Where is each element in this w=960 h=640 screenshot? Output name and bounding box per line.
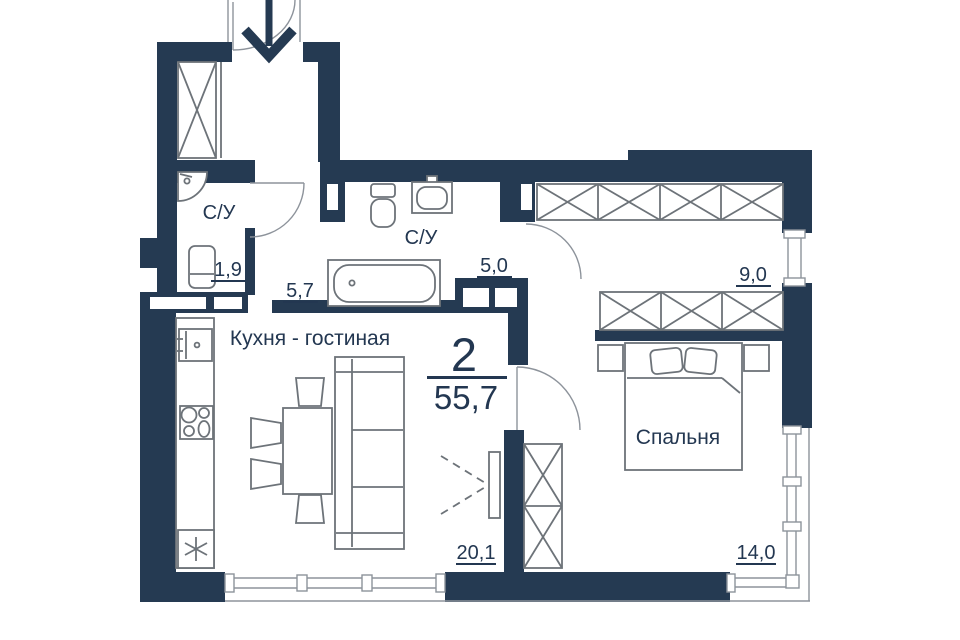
bathroom-door-arc <box>250 183 304 237</box>
dressing-wardrobe-bottom <box>600 292 783 330</box>
bedroom-name: Спальня <box>636 426 720 449</box>
kitchen-sink-icon <box>177 329 212 361</box>
wall-segment <box>245 228 255 295</box>
pillow <box>684 347 717 374</box>
total-area: 55,7 <box>434 379 498 416</box>
hallway-area: 5,7 <box>286 280 314 302</box>
wall-segment <box>140 572 225 602</box>
sofa <box>335 357 404 549</box>
wall-niche <box>521 184 532 210</box>
bedroom-door-arc <box>517 367 580 430</box>
kitchen-living-name: Кухня - гостиная <box>230 327 390 350</box>
chair <box>251 459 281 489</box>
wall-segment <box>782 283 812 428</box>
dressing-door-arc <box>526 224 581 279</box>
wall-segment <box>318 62 340 162</box>
bathtub-icon <box>328 260 440 306</box>
wall-segment <box>157 42 177 292</box>
washing-machine-icon <box>178 530 214 568</box>
washbasin-icon <box>412 176 452 213</box>
bathroom-small-area: 1,9 <box>214 259 242 281</box>
wall-niche <box>327 184 338 210</box>
kitchen-window <box>225 574 445 592</box>
apartment-summary: 2 55,7 <box>427 328 507 416</box>
tv-direction-dashes <box>441 456 487 484</box>
wall-shaft-niche <box>463 288 489 307</box>
floor-plan: С/У 1,9 5,7 С/У 5,0 9,0 Кухня - гостиная… <box>0 0 960 640</box>
chair <box>296 495 324 523</box>
bed <box>598 343 769 470</box>
chair <box>251 418 281 448</box>
wall-segment <box>320 160 812 182</box>
wall-segment <box>504 430 524 573</box>
wall-segment <box>140 238 157 268</box>
wall-segment <box>303 42 340 62</box>
dressing-area: 9,0 <box>739 264 767 286</box>
corner-sink-icon <box>178 172 207 201</box>
bathroom-big-area: 5,0 <box>480 255 508 277</box>
bedroom-wardrobe <box>524 444 562 568</box>
kitchen-counter <box>176 318 214 568</box>
dining-table <box>251 378 332 523</box>
tv <box>441 452 500 518</box>
wall-segment <box>140 313 176 572</box>
bedroom-area: 14,0 <box>737 542 776 564</box>
wall-shaft-niche <box>214 297 242 309</box>
bathroom-big-name: С/У <box>405 227 438 249</box>
nightstand <box>598 345 623 371</box>
hall-wardrobe <box>178 62 221 158</box>
kitchen-living-area: 20,1 <box>457 542 496 564</box>
dressing-window <box>784 230 805 286</box>
pillow <box>650 347 683 374</box>
wall-shaft-niche <box>495 288 517 307</box>
rooms-count: 2 <box>451 328 477 381</box>
wall-segment <box>782 158 812 233</box>
chair <box>296 378 324 406</box>
bathroom-small-name: С/У <box>203 202 236 224</box>
wall-segment <box>445 572 730 602</box>
stove-burners-icon <box>180 406 213 439</box>
toilet-icon <box>371 184 395 227</box>
dressing-wardrobe-top <box>537 184 783 220</box>
wall-shaft-niche <box>150 297 206 309</box>
nightstand <box>744 345 769 371</box>
tv-direction-dashes <box>441 486 487 514</box>
wall-segment <box>508 313 528 365</box>
wall-segment <box>595 330 790 341</box>
